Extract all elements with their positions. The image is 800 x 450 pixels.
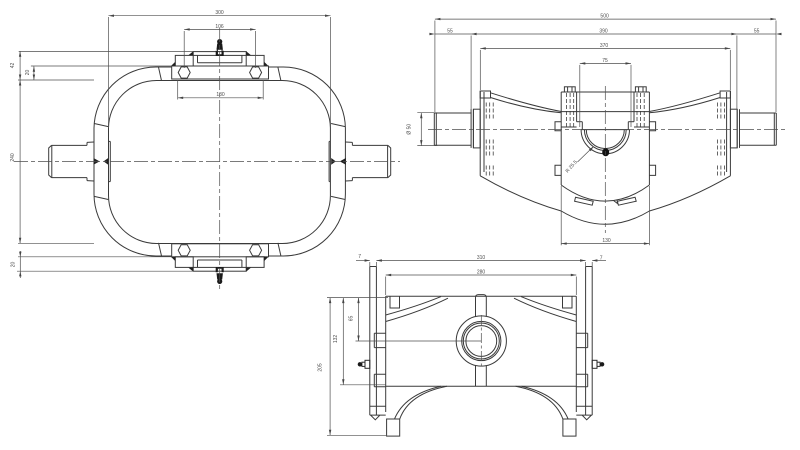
svg-text:7: 7 [358, 254, 361, 260]
svg-text:310: 310 [477, 255, 486, 261]
svg-text:55: 55 [754, 29, 760, 35]
svg-text:42: 42 [10, 63, 16, 69]
svg-text:75: 75 [602, 58, 608, 64]
svg-text:7: 7 [600, 256, 603, 262]
svg-text:106: 106 [215, 24, 224, 30]
svg-text:130: 130 [602, 238, 611, 244]
svg-text:370: 370 [600, 43, 609, 49]
svg-text:280: 280 [477, 270, 486, 276]
svg-text:132: 132 [333, 335, 339, 344]
svg-text:130: 130 [216, 92, 225, 98]
svg-text:Ø 50: Ø 50 [407, 124, 413, 135]
svg-text:65: 65 [348, 316, 354, 322]
svg-text:300: 300 [215, 10, 224, 16]
svg-text:500: 500 [600, 14, 609, 20]
svg-text:20: 20 [11, 262, 17, 268]
svg-text:55: 55 [447, 29, 453, 35]
svg-text:390: 390 [599, 29, 608, 35]
svg-text:240: 240 [10, 153, 16, 162]
svg-text:205: 205 [318, 363, 324, 372]
svg-text:20: 20 [25, 70, 31, 76]
